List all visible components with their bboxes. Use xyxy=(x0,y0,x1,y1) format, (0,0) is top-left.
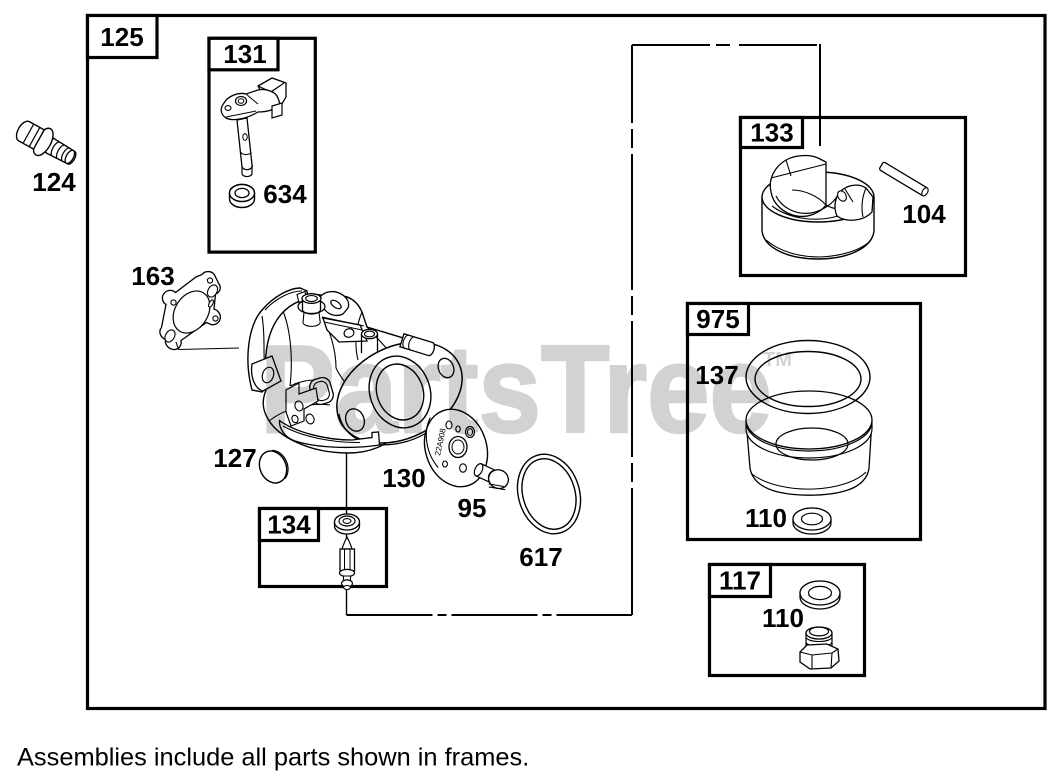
svg-text:Assemblies include all parts s: Assemblies include all parts shown in fr… xyxy=(17,744,529,772)
svg-text:124: 124 xyxy=(32,167,76,197)
svg-text:127: 127 xyxy=(213,443,256,473)
svg-text:104: 104 xyxy=(902,199,946,229)
svg-text:125: 125 xyxy=(100,22,143,52)
svg-text:110: 110 xyxy=(762,603,804,633)
svg-text:133: 133 xyxy=(750,118,793,148)
svg-text:134: 134 xyxy=(267,510,311,540)
svg-text:110: 110 xyxy=(745,503,787,533)
svg-text:617: 617 xyxy=(519,542,562,572)
svg-text:PartsTree: PartsTree xyxy=(260,320,772,459)
svg-text:163: 163 xyxy=(131,261,174,291)
svg-text:TM: TM xyxy=(763,349,792,371)
svg-text:634: 634 xyxy=(263,179,307,209)
svg-text:117: 117 xyxy=(719,566,761,596)
svg-text:131: 131 xyxy=(223,39,266,69)
svg-text:130: 130 xyxy=(382,463,425,493)
svg-text:95: 95 xyxy=(458,493,487,523)
